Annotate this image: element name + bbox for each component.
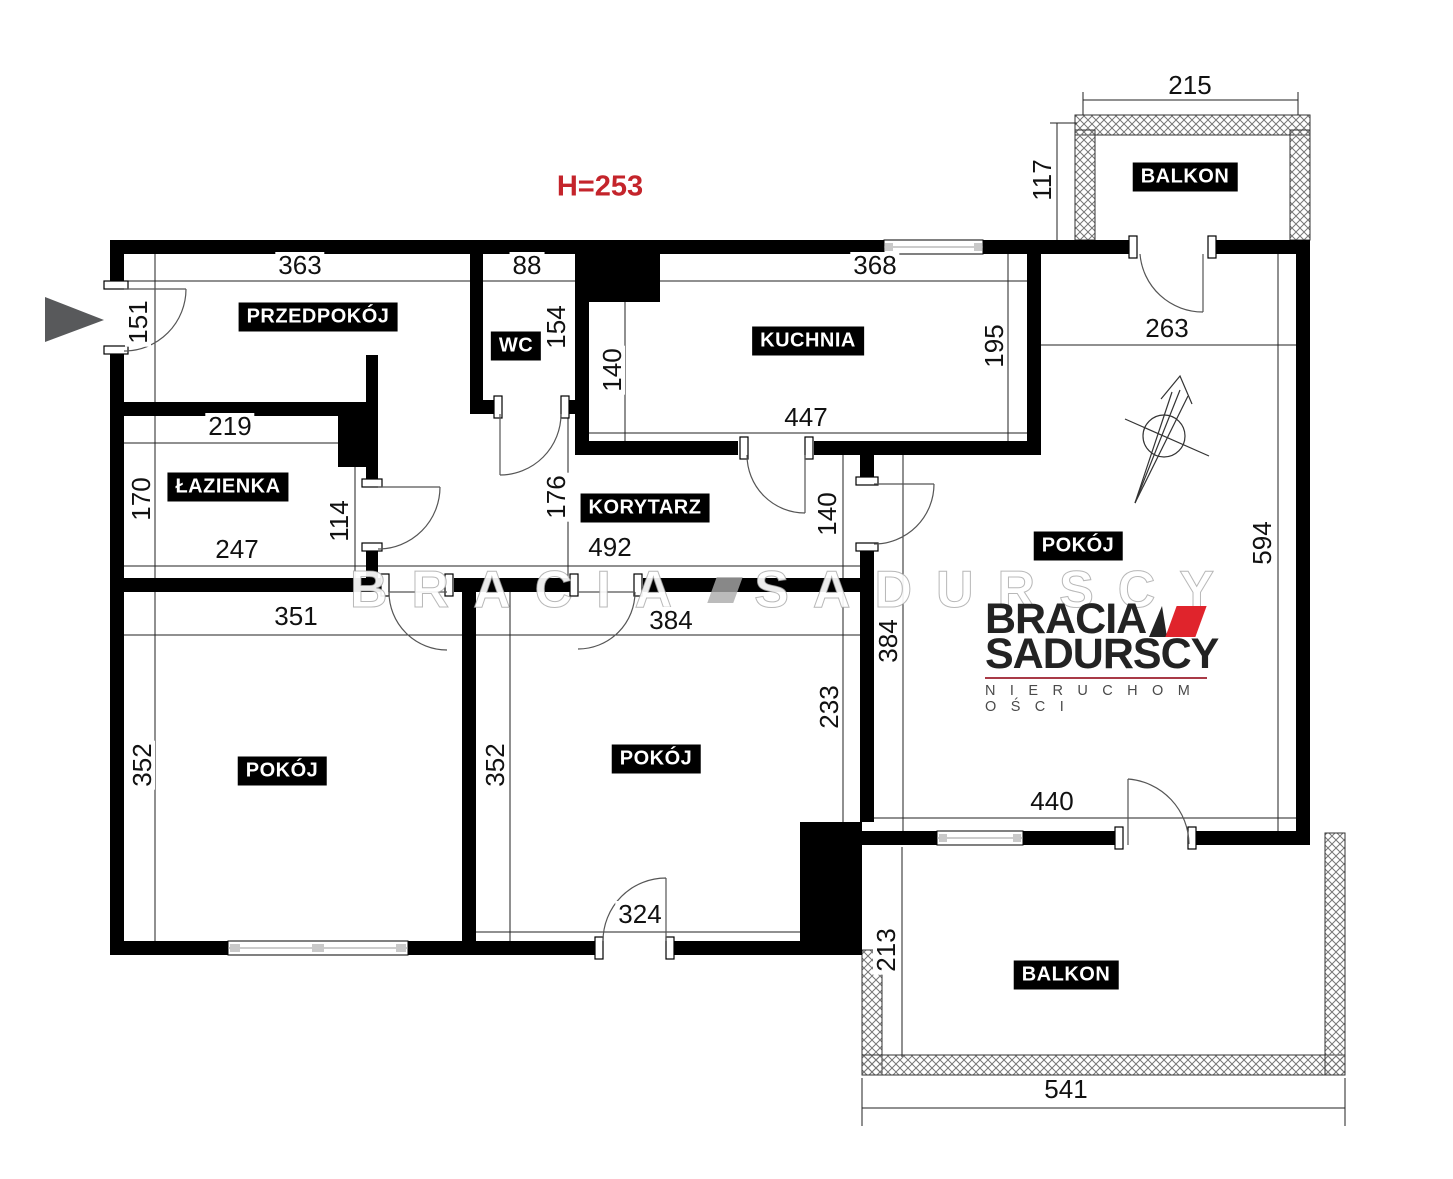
dim-pokoj-middle-right-height: 233 bbox=[816, 682, 842, 731]
room-label-pokoj-middle: POKÓJ bbox=[612, 745, 701, 774]
watermark-logo-shape bbox=[707, 577, 742, 603]
entrance-arrow-icon bbox=[45, 297, 104, 342]
room-label-przedpokoj: PRZEDPOKÓJ bbox=[239, 303, 398, 332]
pokoj-right-door bbox=[856, 477, 934, 551]
room-label-balkon-bottom: BALKON bbox=[1014, 961, 1119, 990]
dim-pokoj-middle-width: 384 bbox=[646, 607, 695, 633]
ceiling-height-note: H=253 bbox=[554, 173, 646, 202]
room-label-pokoj-right: POKÓJ bbox=[1034, 532, 1123, 561]
room-label-wc: WC bbox=[491, 332, 541, 361]
dim-kuchnia-width: 368 bbox=[850, 252, 899, 278]
dim-balkon-bottom-width: 541 bbox=[1041, 1076, 1090, 1102]
dim-pokoj-left-width: 351 bbox=[271, 603, 320, 629]
room-label-lazienka: ŁAZIENKA bbox=[167, 473, 288, 502]
dim-pokoj-right-top-width: 263 bbox=[1142, 315, 1191, 341]
dim-pokoj-right-left-height: 384 bbox=[875, 616, 901, 665]
room-label-pokoj-left: POKÓJ bbox=[238, 757, 327, 786]
room-label-kuchnia: KUCHNIA bbox=[752, 327, 864, 356]
dim-balkon-top-height: 117 bbox=[1029, 156, 1055, 203]
dim-pokoj-right-height: 594 bbox=[1249, 518, 1275, 567]
dim-pokoj-right-bottom-width: 440 bbox=[1027, 788, 1076, 814]
dim-kuchnia-height: 195 bbox=[981, 321, 1007, 370]
bathroom-door bbox=[362, 479, 440, 551]
room-label-balkon-top: BALKON bbox=[1133, 163, 1238, 192]
dim-wc-height: 154 bbox=[543, 302, 569, 351]
dim-przedpokoj-width: 363 bbox=[275, 252, 324, 278]
dim-wc-width: 88 bbox=[510, 252, 545, 278]
wc-door bbox=[494, 396, 569, 475]
dim-lazienka-height: 170 bbox=[128, 474, 154, 523]
dim-korytarz-height: 176 bbox=[543, 472, 569, 521]
dim-korytarz-right-height: 140 bbox=[814, 489, 840, 538]
dim-pokoj-middle-height: 352 bbox=[482, 740, 508, 789]
dim-korytarz-width: 492 bbox=[585, 534, 634, 560]
dim-kuchnia-bottom-width: 447 bbox=[781, 404, 830, 430]
balcony-bottom-door bbox=[1115, 779, 1196, 849]
pokoj-left-window bbox=[228, 941, 408, 955]
kitchen-door bbox=[740, 437, 813, 513]
north-arrow-icon bbox=[1125, 376, 1209, 503]
dim-balkon-bottom-height: 213 bbox=[873, 925, 899, 974]
balcony-bottom-hatched-walls bbox=[862, 833, 1345, 1075]
dim-pokoj-middle-bottom-width: 324 bbox=[615, 901, 664, 927]
pokoj-right-window bbox=[937, 831, 1023, 845]
agency-logo: BRACIA SADURSCY N I E R U C H O M O Ś C … bbox=[985, 599, 1207, 715]
dim-lazienka-door-height: 114 bbox=[326, 497, 352, 544]
room-label-korytarz: KORYTARZ bbox=[581, 494, 710, 523]
watermark-part1: BRACIA bbox=[350, 560, 696, 620]
floor-plan: BRACIASADURSCY H=253 363 151 88 154 368 … bbox=[0, 0, 1453, 1179]
dim-lazienka-bottom-width: 247 bbox=[212, 536, 261, 562]
dim-entry-height: 151 bbox=[125, 297, 151, 346]
dim-balkon-top-width: 215 bbox=[1165, 72, 1214, 98]
dim-kuchnia-left-height: 140 bbox=[599, 345, 625, 394]
dim-lazienka-top-width: 219 bbox=[205, 413, 254, 439]
logo-brand-bottom: SADURSCY bbox=[985, 637, 1207, 672]
dim-pokoj-left-height: 352 bbox=[129, 740, 155, 789]
logo-tagline: N I E R U C H O M O Ś C I bbox=[985, 683, 1207, 715]
balcony-top-door bbox=[1129, 236, 1216, 312]
